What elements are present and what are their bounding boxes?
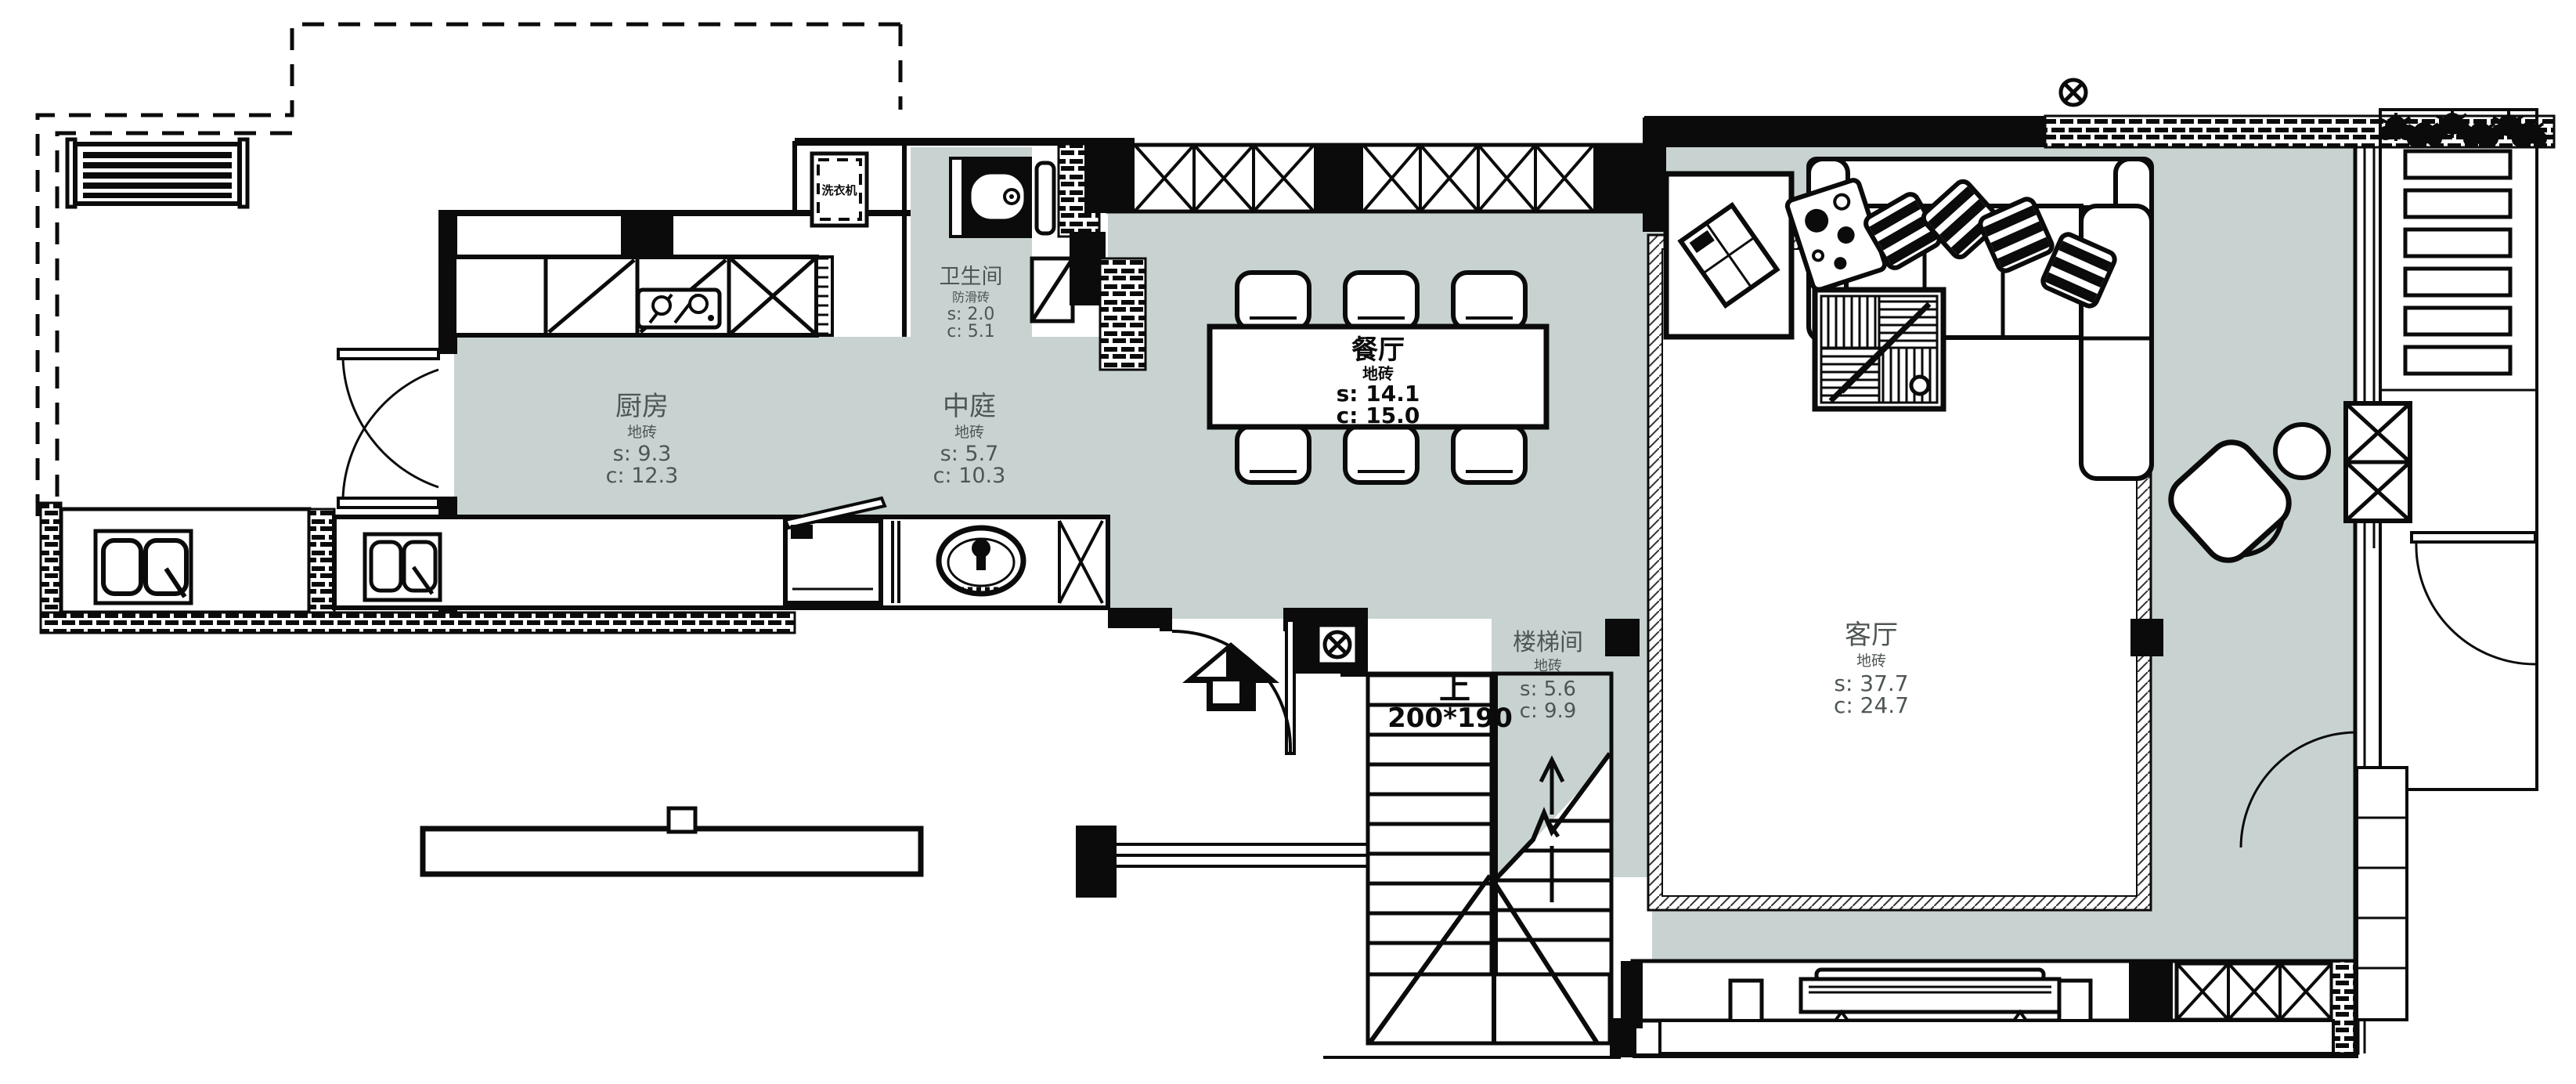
brick-wall — [1100, 258, 1145, 370]
room-finish-atrium: 地砖 — [954, 424, 984, 441]
room-area-atrium: s: 5.7 — [940, 442, 999, 466]
speaker — [1730, 981, 1762, 1023]
vanity-basin — [939, 528, 1023, 594]
room-finish-kitchen: 地砖 — [627, 424, 657, 441]
washing-machine-label: 洗衣机 — [821, 183, 857, 197]
brick-wall-south — [41, 612, 795, 633]
room-name-dining: 餐厅 — [1351, 334, 1405, 366]
stair-up-label: 上 — [1439, 670, 1470, 706]
column — [1605, 619, 1640, 656]
brick-pier — [309, 509, 334, 612]
room-circulation-atrium: c: 10.3 — [933, 464, 1006, 488]
room-name-stairwell: 楼梯间 — [1513, 629, 1583, 656]
ladder-rack — [817, 257, 832, 335]
dining-area: 餐厅 地砖 s: 14.1 c: 15.0 — [1210, 273, 1546, 482]
room-area-stairwell: s: 5.6 — [1520, 677, 1576, 701]
speaker — [2059, 981, 2091, 1023]
room-finish-living: 地砖 — [1856, 652, 1886, 670]
washing-machine: 洗衣机 — [812, 154, 867, 226]
entry — [1108, 608, 1368, 753]
room-name-kitchen: 厨房 — [615, 391, 669, 422]
wall-pier — [621, 210, 673, 255]
floor-plan-canvas: 厨房 地砖 s: 9.3 c: 12.3 中庭 地砖 s: 5.7 c: 10.… — [0, 0, 2576, 1084]
room-name-living: 客厅 — [1845, 620, 1898, 651]
round-side-table — [2275, 425, 2329, 478]
dining-chair — [1453, 273, 1525, 329]
room-circulation-living: c: 24.7 — [1834, 692, 1909, 718]
kitchen-double-door — [338, 349, 438, 508]
utility-sink — [96, 531, 191, 603]
dining-chair — [1453, 426, 1525, 482]
dining-chair — [1237, 273, 1309, 329]
coffee-table — [1815, 290, 1943, 409]
kitchen-sink — [365, 534, 440, 600]
tv-wall — [1621, 961, 2358, 1056]
room-circulation-dining: c: 15.0 — [1337, 403, 1420, 428]
room-area-kitchen: s: 9.3 — [613, 442, 672, 466]
column — [2130, 619, 2163, 656]
entrance-arrow-icon — [1182, 642, 1279, 711]
side-table — [1666, 174, 1791, 337]
vent-grille — [67, 139, 247, 207]
room-finish-stairwell: 地砖 — [1534, 658, 1562, 674]
light-symbol-icon — [1325, 632, 1350, 657]
dining-chair — [1345, 426, 1417, 482]
terrace-door — [2412, 533, 2535, 664]
dining-chair — [1345, 273, 1417, 329]
kitchen-floor — [454, 337, 1108, 519]
x-cabinet-row — [2177, 963, 2332, 1020]
room-name-bathroom: 卫生间 — [940, 265, 1003, 289]
room-finish-bathroom: 防滑砖 — [952, 290, 990, 305]
low-wall-rail — [1076, 826, 1366, 898]
room-circulation-stairwell: c: 9.9 — [1520, 699, 1577, 723]
room-circulation-kitchen: c: 12.3 — [606, 464, 679, 488]
planter-shelves — [2405, 151, 2510, 374]
shaft-x-boxes — [2346, 403, 2410, 521]
switch-symbol — [1318, 625, 1357, 664]
stair-tread-label: 200*190 — [1387, 703, 1513, 734]
cooktop — [638, 290, 720, 327]
side-window — [2357, 768, 2407, 1020]
floor-plan: 厨房 地砖 s: 9.3 c: 12.3 中庭 地砖 s: 5.7 c: 10.… — [0, 0, 2576, 1084]
light-symbol-icon — [2061, 80, 2086, 105]
dining-chair — [1237, 426, 1309, 482]
outdoor-bench — [423, 808, 921, 874]
room-name-atrium: 中庭 — [943, 391, 996, 422]
bathtub — [951, 157, 1032, 238]
north-window-row — [1084, 138, 1654, 213]
kitchen-lower-counter — [334, 498, 1108, 608]
door-panel — [1037, 163, 1054, 233]
room-circulation-bathroom: c: 5.1 — [947, 322, 995, 341]
bathroom-door — [1032, 258, 1073, 321]
window-sill — [1660, 1021, 2333, 1053]
